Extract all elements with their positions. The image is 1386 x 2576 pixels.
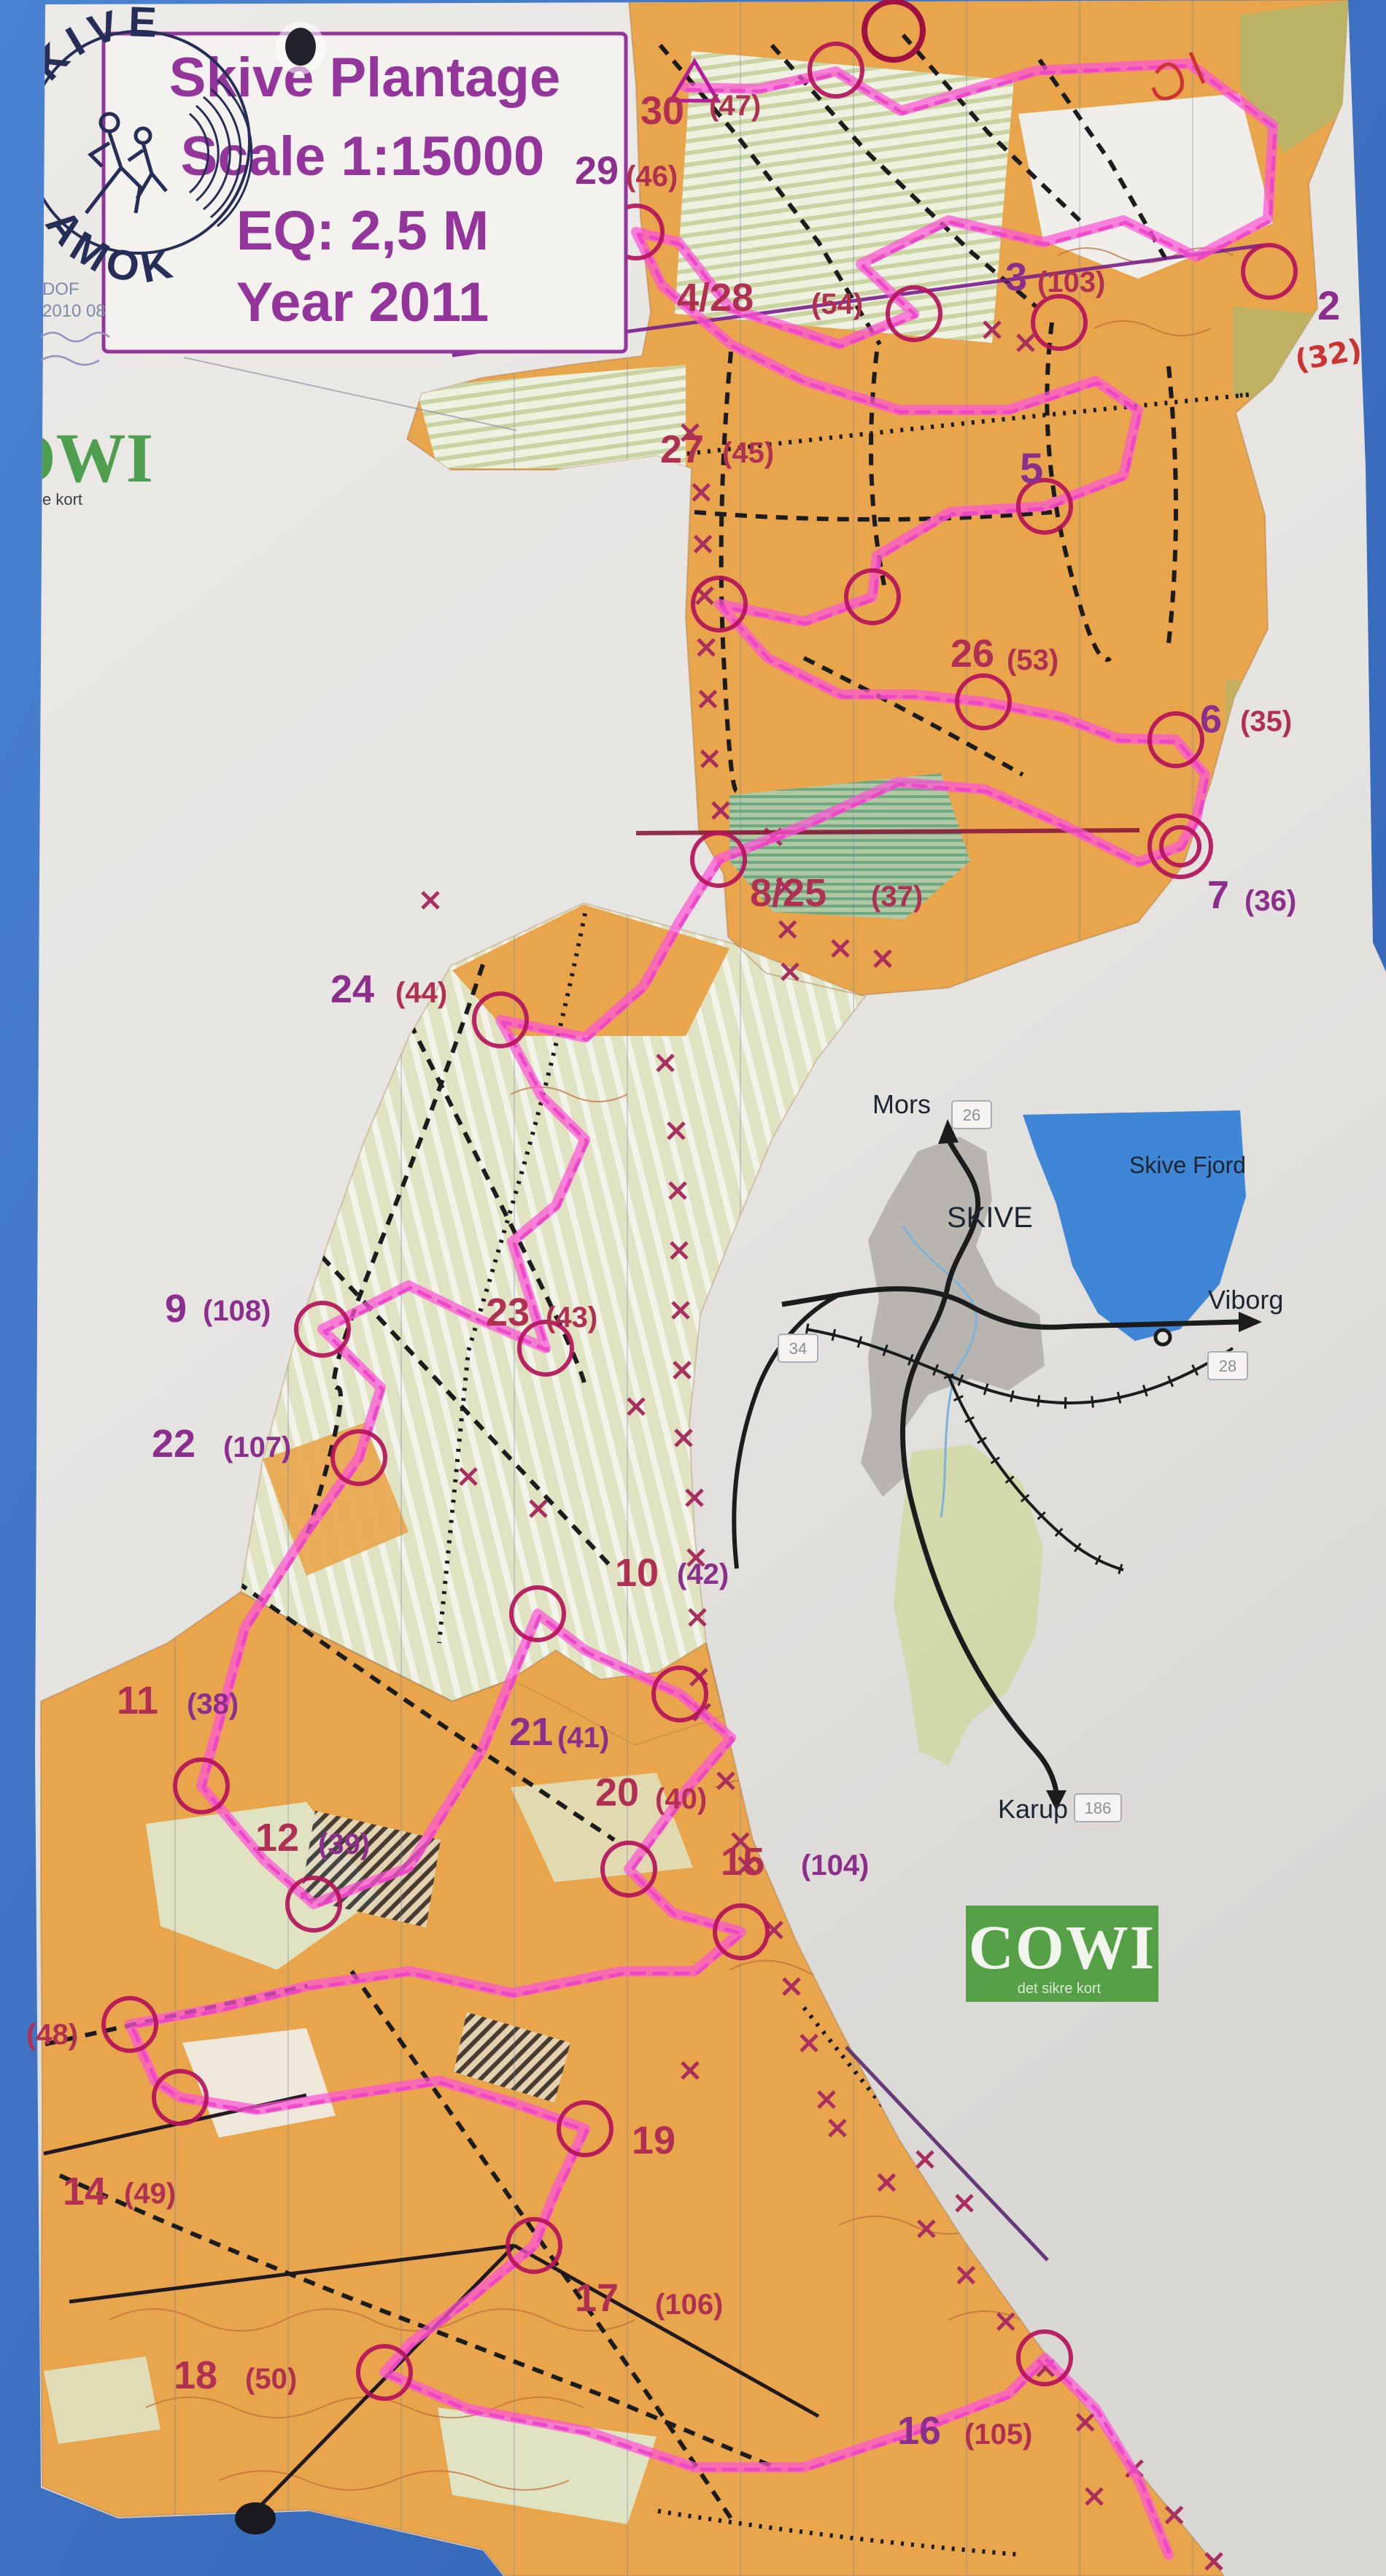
control-label-number: 8/25 [750,871,826,915]
control-label-code: (103) [1037,266,1105,298]
control-label-code: (43) [546,1301,597,1334]
punch-hole-top [285,28,316,66]
map-equidistance: EQ: 2,5 M [236,200,489,262]
control-label-number: 3 [1005,255,1027,299]
control-label-code: (50) [245,2363,297,2395]
control-label-code: (39) [318,1828,370,1860]
road-sign-number: 34 [789,1339,807,1358]
control-label-code: (105) [964,2418,1032,2451]
corner-note-line1: DOF [42,279,80,299]
control-label-number: 22 [152,1422,195,1466]
map-year: Year 2011 [236,271,489,333]
corner-note-line2: 2010 08 [42,301,106,321]
control-label-code: (41) [557,1722,609,1754]
control-label-number: 6 [1200,697,1222,741]
control-label-number: 29 [575,149,619,193]
control-label-code: (47) [709,90,761,122]
bottom-pale3 [44,2356,160,2444]
edge-cowi-sub: e kort [42,490,82,508]
control-label-code: (42) [677,1558,729,1590]
road-sign-number: 28 [1219,1357,1236,1375]
photo-of-orienteering-map: Skive Plantage Scale 1:15000 EQ: 2,5 M Y… [0,0,1386,2576]
control-label-number: 16 [897,2409,941,2453]
cowi-logo-text: COWI [969,1912,1155,1982]
inset-label-skive-city: SKIVE [947,1202,1033,1234]
control-label-code: (38) [187,1688,239,1720]
control-label-number: 9 [165,1287,187,1331]
road-sign-number: 186 [1085,1799,1112,1817]
punch-hole-bottom [235,2502,276,2534]
control-label-code: (40) [655,1783,707,1815]
control-label-code: (108) [203,1295,271,1327]
control-label-number: 4/28 [677,276,754,320]
control-label-number: 2 [1317,282,1340,328]
control-label-code: (106) [655,2289,723,2321]
inset-label-mors: Mors [872,1089,931,1119]
control-label-code: (49) [124,2178,176,2210]
cowi-logo-sub: det sikre kort [1018,1981,1102,1997]
control-label-code: (37) [871,881,923,913]
control-label-number: 10 [615,1551,659,1595]
control-label-number: 30 [640,89,684,133]
cowi-logo: COWI det sikre kort [966,1906,1158,2002]
control-label-number: 14 [63,2170,107,2213]
inset-label-skive-fjord: Skive Fjord [1129,1152,1246,1178]
control-label-number: 17 [575,2276,619,2320]
control-label-number: 27 [660,428,704,471]
control-label-number: 23 [486,1291,530,1334]
map-scale: Scale 1:15000 [181,125,545,187]
control-label-code: (45) [722,437,774,469]
title-box: Skive Plantage Scale 1:15000 EQ: 2,5 M Y… [104,34,626,352]
inset-label-karup: Karup [998,1794,1068,1824]
control-label-code: (107) [223,1431,291,1463]
control-label-number: 5 [1020,445,1043,492]
control-label-number: 19 [632,2119,675,2162]
control-label-code: (36) [1244,885,1296,917]
control-label-code: (53) [1007,644,1058,676]
map-photo-canvas: Skive Plantage Scale 1:15000 EQ: 2,5 M Y… [0,0,1386,2576]
control-label-number: 7 [1207,873,1229,917]
control-label-code: (48) [26,2019,78,2051]
control-label-number: 15 [721,1840,764,1884]
control-label-number: 24 [330,967,374,1011]
road-sign-number: 26 [963,1106,980,1124]
control-label-number: 18 [174,2353,217,2397]
control-label-number: 11 [117,1679,158,1722]
control-label-code: (104) [801,1849,869,1881]
inset-label-viborg: Viborg [1208,1285,1283,1315]
control-label-number: 26 [951,632,994,676]
control-label-code: (35) [1240,705,1292,738]
inset-junction [1155,1330,1170,1345]
control-label-code: (54) [811,288,863,320]
control-label-number: 12 [255,1816,299,1860]
control-label-code: (44) [395,977,447,1009]
control-label-number: 21 [509,1710,553,1754]
control-label-code: (46) [626,160,678,193]
control-label-number: 20 [595,1771,639,1814]
